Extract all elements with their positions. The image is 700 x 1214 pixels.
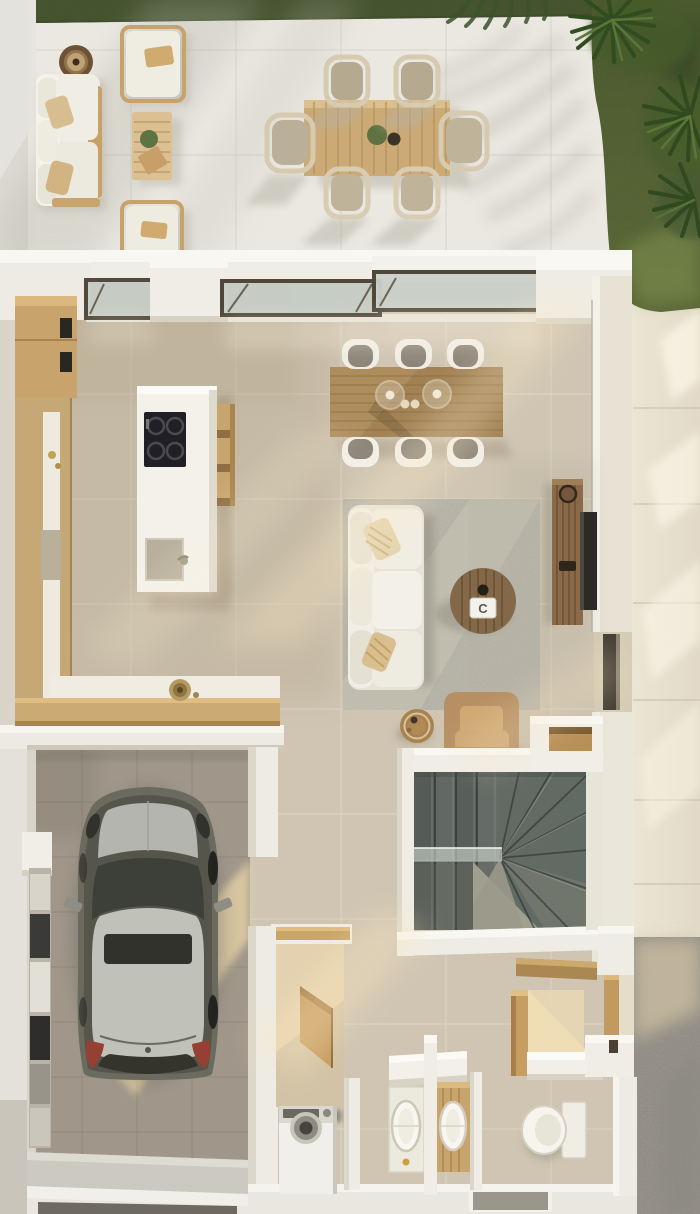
svg-text:C: C	[478, 601, 488, 616]
